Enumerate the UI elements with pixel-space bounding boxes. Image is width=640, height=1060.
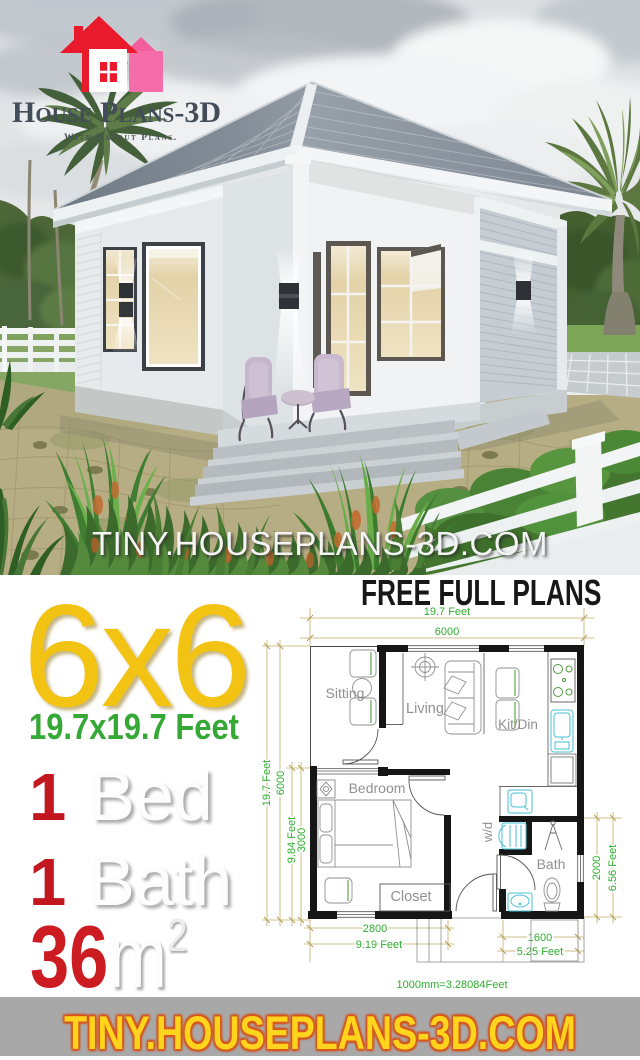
svg-text:19.7 Feet: 19.7 Feet (261, 760, 273, 806)
svg-text:6000: 6000 (435, 626, 459, 638)
svg-text:9.19 Feet: 9.19 Feet (356, 939, 402, 951)
svg-text:House Plans-3D: House Plans-3D (12, 96, 221, 129)
svg-text:2000: 2000 (591, 856, 603, 880)
svg-text:19.7 Feet: 19.7 Feet (424, 606, 470, 618)
svg-text:Kit/Din: Kit/Din (498, 717, 538, 732)
svg-text:6.56 Feet: 6.56 Feet (607, 845, 619, 891)
svg-text:Bath: Bath (537, 856, 566, 872)
svg-text:Closet: Closet (390, 889, 431, 905)
svg-text:1600: 1600 (528, 932, 552, 944)
svg-text:3000: 3000 (296, 828, 308, 852)
svg-text:1000mm=3.28084Feet: 1000mm=3.28084Feet (397, 979, 508, 991)
svg-text:w/d: w/d (480, 822, 495, 843)
svg-text:Living: Living (406, 701, 444, 717)
svg-text:6000: 6000 (275, 771, 287, 795)
svg-text:With Layout Plans.: With Layout Plans. (64, 133, 178, 143)
svg-text:Bedroom: Bedroom (349, 780, 406, 796)
svg-text:Sitting: Sitting (326, 685, 365, 701)
svg-text:2800: 2800 (363, 923, 387, 935)
svg-text:5.25 Feet: 5.25 Feet (517, 946, 563, 958)
